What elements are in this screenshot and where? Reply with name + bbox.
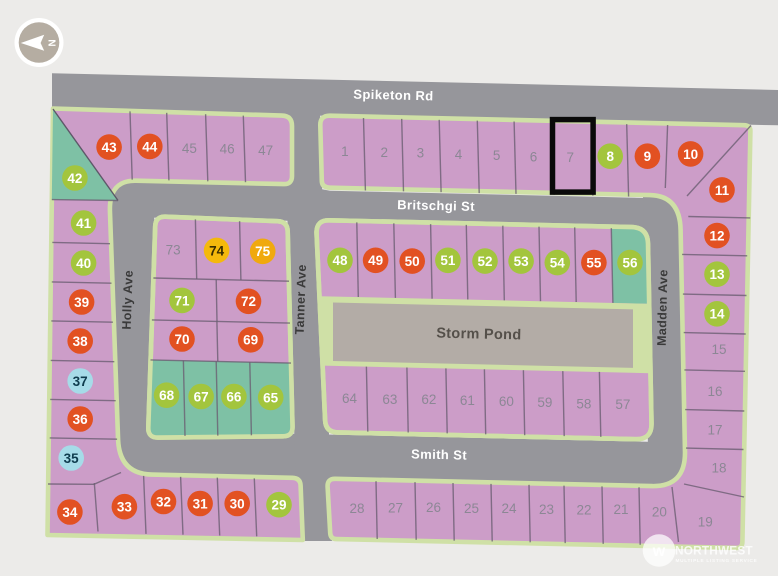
svg-text:43: 43: [102, 140, 118, 155]
svg-text:29: 29: [271, 498, 286, 513]
svg-text:Holly Ave: Holly Ave: [120, 270, 136, 330]
svg-text:72: 72: [241, 294, 256, 309]
svg-text:MULTIPLE LISTING SERVICE: MULTIPLE LISTING SERVICE: [676, 558, 758, 563]
svg-text:1: 1: [341, 144, 349, 159]
svg-text:71: 71: [174, 293, 190, 308]
svg-text:66: 66: [226, 389, 242, 404]
svg-text:8: 8: [606, 149, 614, 164]
svg-text:40: 40: [76, 256, 91, 271]
svg-text:19: 19: [698, 514, 713, 529]
svg-text:74: 74: [209, 243, 225, 258]
svg-text:68: 68: [159, 388, 175, 403]
svg-text:44: 44: [142, 139, 158, 154]
svg-text:57: 57: [615, 397, 630, 412]
svg-text:9: 9: [644, 149, 652, 164]
svg-text:2: 2: [380, 145, 388, 160]
svg-text:69: 69: [243, 333, 258, 348]
svg-text:37: 37: [73, 374, 88, 389]
svg-text:3: 3: [417, 146, 425, 161]
svg-text:20: 20: [652, 504, 667, 519]
svg-text:6: 6: [530, 149, 538, 164]
svg-text:Spiketon Rd: Spiketon Rd: [353, 87, 434, 104]
svg-text:28: 28: [349, 501, 364, 516]
svg-text:22: 22: [576, 502, 591, 517]
svg-text:41: 41: [76, 216, 92, 231]
svg-text:34: 34: [62, 505, 78, 520]
svg-text:N: N: [46, 39, 57, 46]
svg-text:48: 48: [332, 253, 348, 268]
svg-text:25: 25: [464, 501, 479, 516]
svg-text:59: 59: [537, 395, 552, 410]
svg-text:45: 45: [182, 141, 197, 156]
svg-text:27: 27: [388, 500, 403, 515]
svg-text:54: 54: [550, 256, 566, 271]
svg-text:62: 62: [421, 392, 436, 407]
svg-text:11: 11: [715, 183, 730, 198]
svg-text:65: 65: [263, 390, 279, 405]
svg-text:26: 26: [426, 500, 441, 515]
svg-text:4: 4: [455, 147, 463, 162]
svg-text:32: 32: [156, 494, 171, 509]
svg-text:52: 52: [477, 254, 492, 269]
svg-text:30: 30: [230, 496, 245, 511]
svg-text:56: 56: [622, 256, 638, 271]
svg-text:73: 73: [166, 242, 181, 257]
svg-text:15: 15: [711, 342, 726, 357]
svg-text:49: 49: [368, 253, 383, 268]
svg-text:46: 46: [220, 142, 235, 157]
svg-text:Britschgi St: Britschgi St: [397, 197, 475, 214]
svg-text:7: 7: [567, 150, 575, 165]
svg-text:13: 13: [709, 267, 725, 282]
svg-text:70: 70: [174, 332, 189, 347]
svg-text:24: 24: [501, 501, 517, 516]
svg-text:17: 17: [707, 422, 722, 437]
svg-text:47: 47: [258, 143, 273, 158]
svg-text:50: 50: [405, 254, 420, 269]
svg-text:55: 55: [586, 256, 602, 271]
svg-text:63: 63: [382, 392, 397, 407]
svg-text:60: 60: [499, 394, 514, 409]
svg-text:10: 10: [683, 147, 698, 162]
svg-text:39: 39: [74, 295, 89, 310]
svg-text:Smith St: Smith St: [411, 446, 468, 462]
svg-text:33: 33: [117, 500, 133, 515]
svg-text:36: 36: [73, 412, 89, 427]
svg-text:12: 12: [709, 229, 724, 244]
svg-text:58: 58: [576, 397, 591, 412]
svg-text:31: 31: [193, 496, 209, 511]
svg-text:Tanner Ave: Tanner Ave: [293, 264, 309, 335]
svg-text:42: 42: [67, 171, 82, 186]
svg-text:14: 14: [709, 307, 725, 322]
svg-text:21: 21: [613, 502, 628, 517]
svg-text:5: 5: [493, 148, 501, 163]
svg-text:67: 67: [194, 389, 209, 404]
svg-text:38: 38: [73, 334, 89, 349]
svg-text:35: 35: [64, 451, 80, 466]
svg-text:Storm Pond: Storm Pond: [436, 326, 522, 344]
svg-text:w: w: [652, 543, 666, 560]
svg-text:61: 61: [460, 393, 475, 408]
svg-text:75: 75: [255, 244, 271, 259]
svg-text:18: 18: [711, 460, 726, 475]
svg-text:NORTHWEST: NORTHWEST: [675, 544, 753, 558]
svg-text:Madden Ave: Madden Ave: [655, 269, 671, 346]
svg-text:64: 64: [342, 391, 358, 406]
svg-text:23: 23: [539, 502, 554, 517]
svg-text:51: 51: [440, 253, 456, 268]
svg-text:53: 53: [514, 254, 530, 269]
svg-text:16: 16: [707, 384, 722, 399]
